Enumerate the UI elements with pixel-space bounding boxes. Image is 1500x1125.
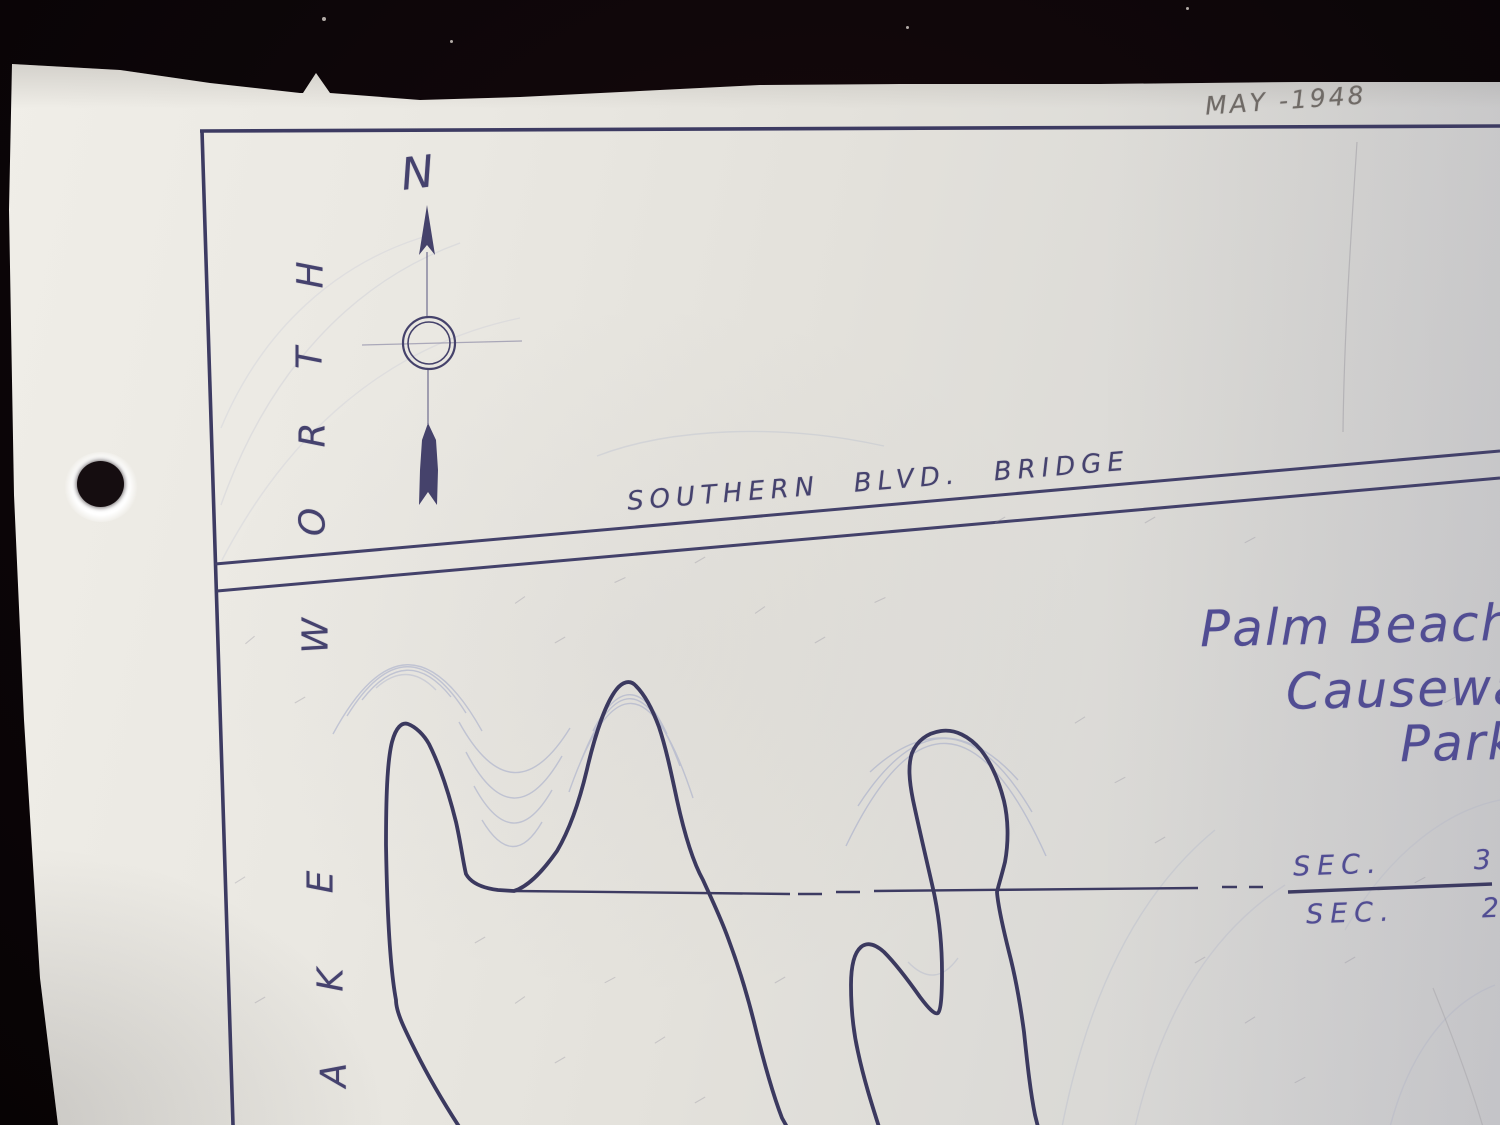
water-label-letter: R — [293, 422, 334, 447]
map-title-line-1: Palm Beach — [1199, 594, 1500, 659]
water-label-letter: W — [296, 618, 337, 654]
section-label-bottom-text: SEC. — [1306, 896, 1397, 930]
section-line — [514, 884, 1492, 894]
north-arrow-feather — [419, 423, 438, 505]
north-arrow-head — [419, 205, 435, 255]
compass-north-label: N — [398, 146, 437, 201]
section-label-top-text: SEC. — [1293, 848, 1384, 882]
water-label-letter: H — [291, 261, 332, 288]
map-border-left — [202, 131, 233, 1125]
map-title-line-3: Park — [1399, 713, 1500, 773]
map-border-top — [200, 126, 1500, 131]
section-label-bottom-number: 2 — [1481, 893, 1500, 925]
hole-punch — [77, 461, 124, 507]
water-label-letter: K — [311, 968, 352, 992]
dust-speck — [450, 40, 453, 43]
map-linework — [0, 0, 1500, 1125]
section-label-top-number: 3 — [1473, 844, 1498, 876]
map-title-line-2: Causeway — [1285, 657, 1500, 721]
water-label-letter: O — [293, 508, 334, 536]
water-label-letter: T — [290, 347, 331, 369]
dust-speck — [1186, 7, 1189, 10]
dust-speck — [322, 17, 326, 21]
paper-sheet: MAY -1948 N SOUTHERN BLVD. BRIDGE Palm B… — [0, 0, 1500, 1125]
section-fraction-bar — [1288, 884, 1492, 892]
dust-speck — [906, 26, 909, 29]
photo-scene: MAY -1948 N SOUTHERN BLVD. BRIDGE Palm B… — [0, 0, 1500, 1125]
water-label-letter: A — [314, 1063, 355, 1088]
water-label-letter: E — [301, 871, 342, 894]
